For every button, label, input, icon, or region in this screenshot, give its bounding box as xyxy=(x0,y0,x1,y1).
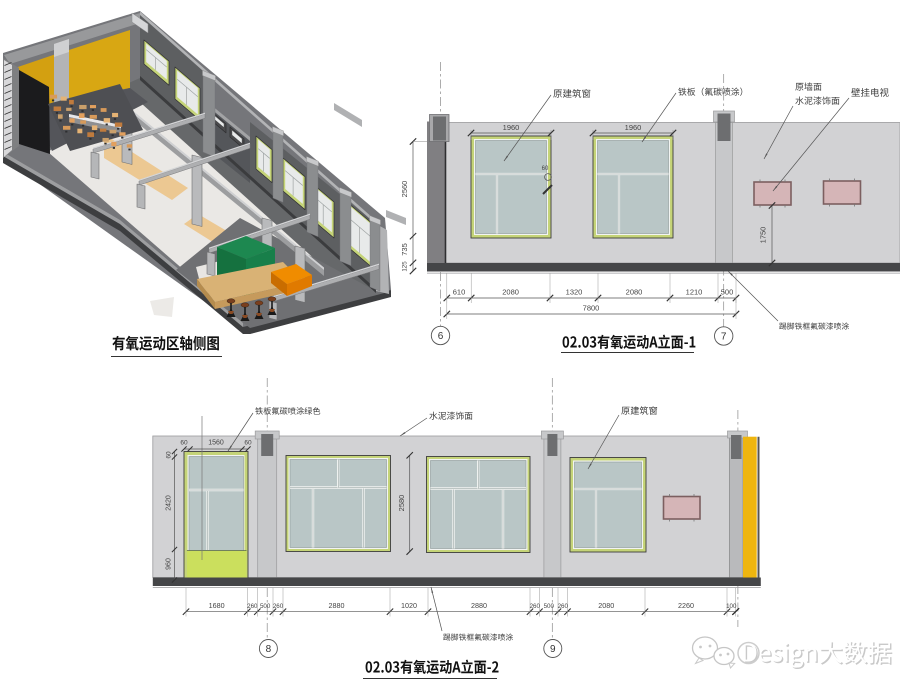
svg-text:1560: 1560 xyxy=(208,440,224,447)
svg-text:610: 610 xyxy=(453,288,466,297)
svg-text:125: 125 xyxy=(402,261,409,272)
svg-text:260: 260 xyxy=(558,603,569,610)
svg-text:1750: 1750 xyxy=(759,227,768,244)
svg-text:500: 500 xyxy=(260,603,271,610)
svg-text:6: 6 xyxy=(438,331,444,342)
svg-text:2080: 2080 xyxy=(626,288,643,297)
svg-text:8: 8 xyxy=(266,644,272,655)
svg-text:960: 960 xyxy=(166,558,173,570)
svg-text:2880: 2880 xyxy=(471,601,487,610)
svg-text:1210: 1210 xyxy=(686,288,703,297)
svg-text:2080: 2080 xyxy=(598,601,614,610)
svg-text:1020: 1020 xyxy=(401,601,417,610)
svg-text:1960: 1960 xyxy=(625,123,642,132)
svg-text:260: 260 xyxy=(530,603,541,610)
svg-text:1680: 1680 xyxy=(209,601,225,610)
svg-text:1320: 1320 xyxy=(566,288,583,297)
svg-text:60: 60 xyxy=(180,440,188,447)
svg-text:60: 60 xyxy=(542,166,549,172)
svg-text:500: 500 xyxy=(721,288,734,297)
svg-text:1960: 1960 xyxy=(503,123,520,132)
svg-text:735: 735 xyxy=(400,243,409,256)
svg-text:260: 260 xyxy=(273,603,284,610)
svg-text:7: 7 xyxy=(721,332,727,343)
svg-text:7800: 7800 xyxy=(583,304,600,313)
svg-text:2580: 2580 xyxy=(397,495,406,512)
svg-text:2560: 2560 xyxy=(400,181,409,198)
svg-text:2080: 2080 xyxy=(502,288,519,297)
svg-text:2420: 2420 xyxy=(166,495,173,511)
svg-text:60: 60 xyxy=(166,451,173,459)
svg-text:260: 260 xyxy=(247,603,258,610)
svg-text:2260: 2260 xyxy=(678,601,694,610)
svg-text:500: 500 xyxy=(544,603,555,610)
svg-text:60: 60 xyxy=(244,440,252,447)
svg-text:9: 9 xyxy=(550,644,556,655)
svg-text:2880: 2880 xyxy=(329,601,345,610)
svg-text:100: 100 xyxy=(726,603,737,610)
